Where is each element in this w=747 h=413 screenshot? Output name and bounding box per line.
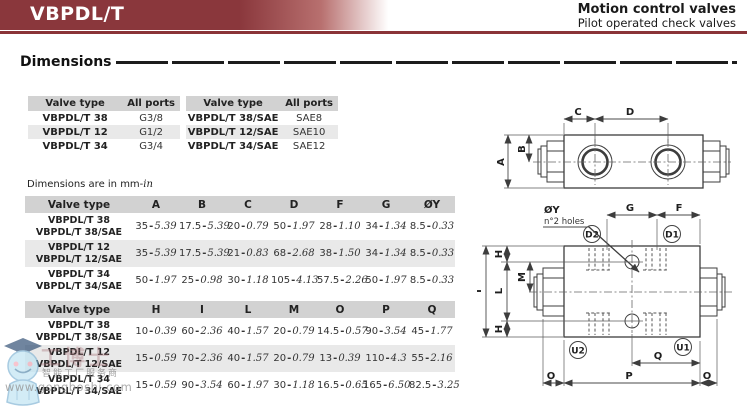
dim-label-Q: Q: [654, 351, 663, 362]
cell: VBPDL/T 12: [28, 125, 122, 139]
table-row: VBPDL/T 34/SAESAE12: [186, 139, 338, 153]
dimension-cell: 60-2.36: [179, 318, 225, 345]
section-heading: Dimensions: [20, 54, 737, 70]
dimension-cell: 38-1.50: [317, 240, 363, 267]
cell: VBPDL/T 12/SAE: [186, 125, 280, 139]
dim-label-D: D: [626, 107, 634, 118]
dimension-cell: 15-0.59: [133, 345, 179, 372]
cell: G1/2: [122, 125, 180, 139]
valve-name-cell: VBPDL/T 34VBPDL/T 34/SAE: [25, 372, 133, 399]
column-header: Valve type: [25, 196, 133, 213]
dim-label-A: A: [496, 158, 507, 166]
dimension-cell: 8.5-0.33: [409, 240, 455, 267]
table-row: VBPDL/T 38/SAESAE8: [186, 111, 338, 125]
page-subtitle: Pilot operated check valves: [578, 17, 736, 30]
dimension-cell: 14.5-0.57: [317, 318, 363, 345]
dimension-cell: 55-2.16: [409, 345, 455, 372]
valve-name-cell: VBPDL/T 34VBPDL/T 34/SAE: [25, 267, 133, 294]
dimension-cell: 40-1.57: [225, 345, 271, 372]
header-right: Motion control valves Pilot operated che…: [578, 2, 736, 30]
column-header: Q: [409, 301, 455, 318]
dimension-cell: 30-1.18: [271, 372, 317, 399]
column-header: C: [225, 196, 271, 213]
dim-label-F: F: [676, 203, 683, 214]
dim-label-M: M: [517, 272, 528, 282]
cell: VBPDL/T 34: [28, 139, 122, 153]
column-header: A: [133, 196, 179, 213]
section-rule: [116, 61, 737, 64]
column-header: G: [363, 196, 409, 213]
dimension-cell: 68-2.68: [271, 240, 317, 267]
table-row: VBPDL/T 34G3/4: [28, 139, 180, 153]
column-header: M: [271, 301, 317, 318]
dimension-cell: 28-1.10: [317, 213, 363, 240]
column-header: Valve type: [28, 96, 122, 111]
units-note-unit: in: [143, 179, 153, 190]
dimension-cell: 15-0.59: [133, 372, 179, 399]
cell: VBPDL/T 38: [28, 111, 122, 125]
table-row: VBPDL/T 38VBPDL/T 38/SAE35-5.3917.5-5.39…: [25, 213, 455, 240]
units-note-prefix: Dimensions are in mm-: [27, 179, 143, 190]
dimension-cell: 13-0.39: [317, 345, 363, 372]
dimension-cell: 40-1.57: [225, 318, 271, 345]
left-fitting-icon: [538, 141, 564, 182]
port-label-U2: U2: [571, 347, 585, 357]
dimension-cell: 20-0.79: [271, 345, 317, 372]
column-header: H: [133, 301, 179, 318]
valve-name-cell: VBPDL/T 12VBPDL/T 12/SAE: [25, 240, 133, 267]
dimension-cell: 10-0.39: [133, 318, 179, 345]
dimension-cell: 8.5-0.33: [409, 213, 455, 240]
dim-label-O: O: [703, 371, 712, 382]
header-rule: [0, 31, 747, 34]
dim-label-H: H: [494, 325, 505, 333]
table-row: VBPDL/T 12VBPDL/T 12/SAE35-5.3917.5-5.39…: [25, 240, 455, 267]
dimension-cell: 57.5-2.26: [317, 267, 363, 294]
column-header: D: [271, 196, 317, 213]
column-header: B: [179, 196, 225, 213]
dimension-cell: 8.5-0.33: [409, 267, 455, 294]
section-title: Dimensions: [20, 54, 112, 70]
holes-note: n°2 holes: [544, 217, 585, 227]
cell: SAE12: [280, 139, 338, 153]
table-row: VBPDL/T 38G3/8: [28, 111, 180, 125]
datasheet-page: VBPDL/T Motion control valves Pilot oper…: [0, 0, 747, 413]
table-row: VBPDL/T 12VBPDL/T 12/SAE15-0.5970-2.3640…: [25, 345, 455, 372]
dimension-cell: 90-3.54: [179, 372, 225, 399]
dimension-cell: 50-1.97: [363, 267, 409, 294]
column-header: All ports: [122, 96, 180, 111]
dimension-cell: 25-0.98: [179, 267, 225, 294]
technical-drawing: C D A B: [477, 93, 747, 413]
dim-label-I: I: [477, 289, 484, 293]
dimension-cell: 34-1.34: [363, 213, 409, 240]
top-view: C D A B: [496, 107, 731, 188]
dimension-cell: 30-1.18: [225, 267, 271, 294]
product-code: VBPDL/T: [30, 3, 124, 25]
dimension-cell: 20-0.79: [225, 213, 271, 240]
column-header: Valve type: [186, 96, 280, 111]
dimension-cell: 35-5.39: [133, 240, 179, 267]
port-label-D1: D1: [665, 231, 679, 241]
dim-label-O: O: [547, 371, 556, 382]
dimension-cell: 50-1.97: [133, 267, 179, 294]
port-table-gas: Valve typeAll portsVBPDL/T 38G3/8VBPDL/T…: [28, 96, 180, 153]
dimension-cell: 17.5-5.39: [179, 213, 225, 240]
dim-label-G: G: [626, 203, 634, 214]
dimension-cell: 82.5-3.25: [409, 372, 455, 399]
table-row: VBPDL/T 12G1/2: [28, 125, 180, 139]
column-header: All ports: [280, 96, 338, 111]
dimension-cell: 20-0.79: [271, 318, 317, 345]
port-label-U1: U1: [676, 344, 690, 354]
dimension-table-1: Valve typeABCDFGØYVBPDL/T 38VBPDL/T 38/S…: [25, 196, 455, 294]
dimension-cell: 21-0.83: [225, 240, 271, 267]
column-header: L: [225, 301, 271, 318]
port-tables: Valve typeAll portsVBPDL/T 38G3/8VBPDL/T…: [28, 96, 338, 153]
column-header: O: [317, 301, 363, 318]
dim-label-C: C: [574, 107, 581, 118]
dim-label-H: H: [494, 250, 505, 258]
dimension-cell: 105-4.13: [271, 267, 317, 294]
dimension-cell: 60-1.97: [225, 372, 271, 399]
dimension-cell: 45-1.77: [409, 318, 455, 345]
dimension-table-2: Valve typeHILMOPQVBPDL/T 38VBPDL/T 38/SA…: [25, 301, 455, 399]
table-row: VBPDL/T 12/SAESAE10: [186, 125, 338, 139]
cell: VBPDL/T 34/SAE: [186, 139, 280, 153]
leader-line: [589, 227, 639, 272]
dimension-cell: 90-3.54: [363, 318, 409, 345]
port-table-sae: Valve typeAll portsVBPDL/T 38/SAESAE8VBP…: [186, 96, 338, 153]
valve-name-cell: VBPDL/T 38VBPDL/T 38/SAE: [25, 213, 133, 240]
cell: G3/4: [122, 139, 180, 153]
cell: VBPDL/T 38/SAE: [186, 111, 280, 125]
dim-label-L: L: [494, 287, 505, 294]
dimension-cell: 35-5.39: [133, 213, 179, 240]
valve-name-cell: VBPDL/T 12VBPDL/T 12/SAE: [25, 345, 133, 372]
column-header: P: [363, 301, 409, 318]
cell: SAE8: [280, 111, 338, 125]
dimension-cell: 16.5-0.65: [317, 372, 363, 399]
valve-name-cell: VBPDL/T 38VBPDL/T 38/SAE: [25, 318, 133, 345]
right-fitting-icon: [703, 141, 729, 182]
column-header: ØY: [409, 196, 455, 213]
dimension-cell: 17.5-5.39: [179, 240, 225, 267]
dimension-cell: 34-1.34: [363, 240, 409, 267]
dimension-cell: 165-6.50: [363, 372, 409, 399]
valve-body-top-view: [564, 135, 703, 188]
dimension-cell: 50-1.97: [271, 213, 317, 240]
units-note: Dimensions are in mm-in: [27, 179, 153, 190]
cell: G3/8: [122, 111, 180, 125]
page-title: Motion control valves: [578, 2, 736, 17]
dimension-cell: 110-4.3: [363, 345, 409, 372]
column-header: F: [317, 196, 363, 213]
dimension-cell: 70-2.36: [179, 345, 225, 372]
column-header: I: [179, 301, 225, 318]
cell: SAE10: [280, 125, 338, 139]
front-view: D2 D1 U2 U1 ØY n°2 holes G F: [477, 203, 733, 386]
dim-label-B: B: [517, 145, 528, 153]
dim-label-P: P: [625, 371, 632, 382]
column-header: Valve type: [25, 301, 133, 318]
table-row: VBPDL/T 38VBPDL/T 38/SAE10-0.3960-2.3640…: [25, 318, 455, 345]
table-row: VBPDL/T 34VBPDL/T 34/SAE50-1.9725-0.9830…: [25, 267, 455, 294]
port-label-D2: D2: [585, 231, 599, 241]
table-row: VBPDL/T 34VBPDL/T 34/SAE15-0.5990-3.5460…: [25, 372, 455, 399]
dim-label-OY: ØY: [544, 204, 560, 216]
